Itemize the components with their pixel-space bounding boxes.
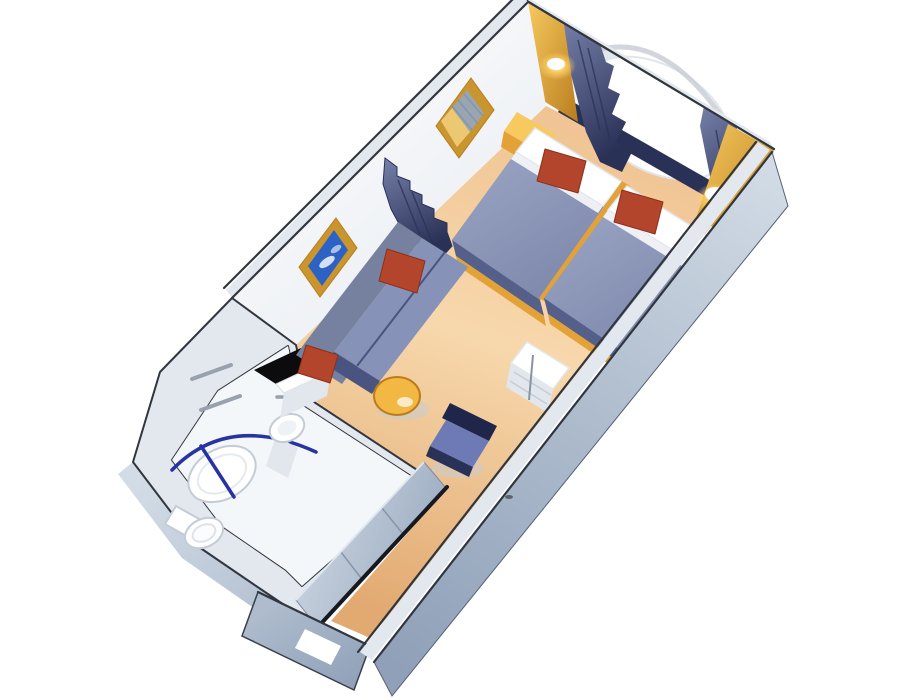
door-stop-detail: [505, 495, 513, 499]
table-top: [374, 377, 420, 415]
table-highlight: [397, 397, 413, 407]
cabin-floorplan-render: [0, 0, 900, 700]
cabin-3d-scene: [0, 0, 900, 700]
wall-sconce-left: [547, 58, 565, 70]
